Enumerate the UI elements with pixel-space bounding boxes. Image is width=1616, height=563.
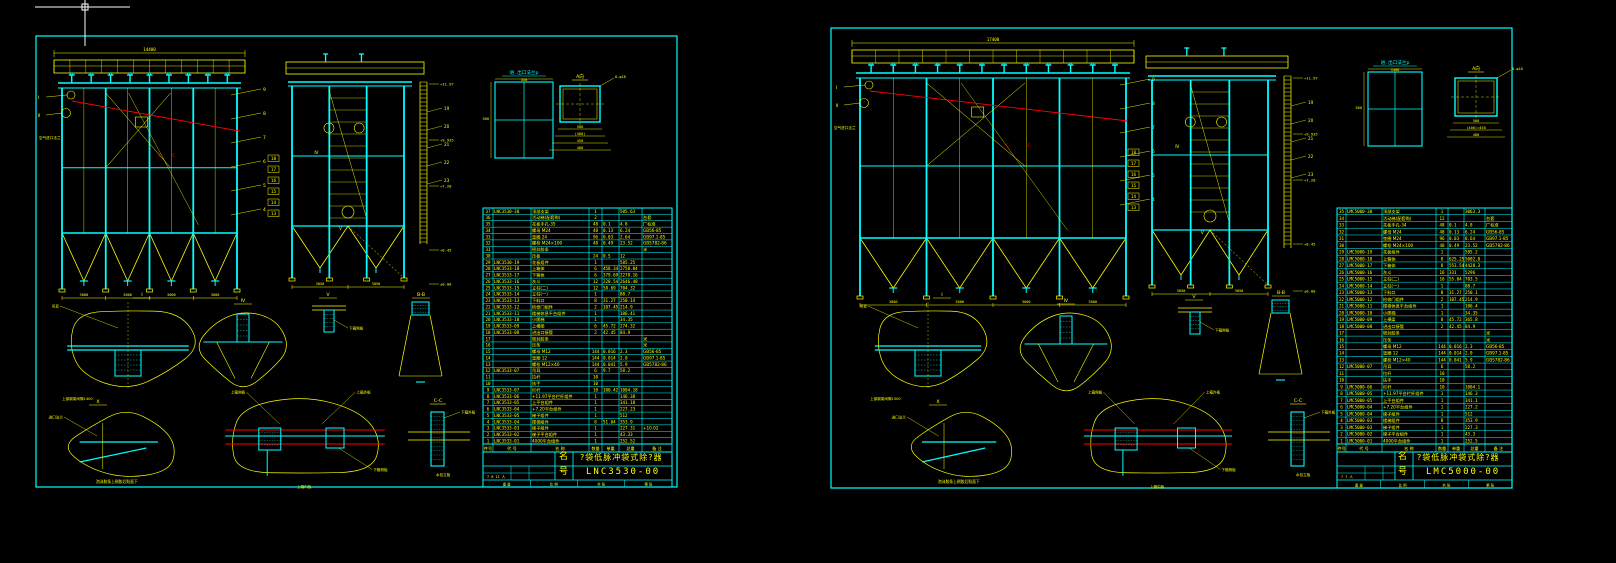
- svg-text:450: 450: [577, 139, 584, 143]
- svg-text:C: C: [1028, 143, 1031, 148]
- svg-text:立柱(一): 立柱(一): [1383, 282, 1399, 289]
- svg-text:5296: 5296: [1465, 270, 1476, 275]
- svg-text:6.24: 6.24: [1465, 229, 1476, 234]
- svg-text:31.27: 31.27: [1449, 290, 1462, 295]
- svg-text:353.9: 353.9: [1465, 418, 1478, 423]
- svg-text:480: 480: [577, 146, 584, 150]
- svg-text:Ⅱ: Ⅱ: [38, 113, 40, 119]
- svg-text:3: 3: [1340, 425, 1343, 430]
- svg-text:LNC3533-04: LNC3533-04: [494, 419, 520, 424]
- svg-text:4428.3: 4428.3: [1465, 263, 1481, 268]
- svg-text:26: 26: [485, 279, 491, 284]
- svg-text:螺母 M24: 螺母 M24: [532, 227, 551, 234]
- svg-text:16: 16: [271, 178, 277, 183]
- svg-text:16: 16: [1439, 270, 1445, 275]
- svg-text:6: 6: [594, 324, 597, 329]
- svg-text:0.03: 0.03: [603, 234, 614, 239]
- svg-text:Ⅴ: Ⅴ: [1192, 294, 1196, 300]
- svg-text:LNC3533-02: LNC3533-02: [494, 432, 520, 437]
- svg-text:32: 32: [485, 241, 491, 246]
- svg-text:+7.20平台组件: +7.20平台组件: [532, 406, 562, 413]
- svg-text:+7.20: +7.20: [1304, 178, 1316, 183]
- svg-text:214.9: 214.9: [620, 304, 633, 309]
- svg-text:水包立板: 水包立板: [1296, 472, 1311, 477]
- svg-text:21: 21: [1339, 304, 1345, 309]
- svg-text:单重: 单重: [1452, 445, 1460, 452]
- svg-text:2: 2: [1340, 432, 1343, 437]
- svg-text:GB97.1-85: GB97.1-85: [1486, 236, 1509, 241]
- svg-text:米: 米: [643, 335, 648, 342]
- svg-text:14: 14: [271, 200, 277, 205]
- svg-text:1: 1: [594, 311, 597, 316]
- svg-text:LNC3533-10: LNC3533-10: [494, 317, 520, 322]
- svg-text:吊耳: 吊耳: [52, 304, 60, 309]
- svg-text:检修门组件: 检修门组件: [532, 303, 553, 310]
- svg-text:6: 6: [594, 273, 597, 278]
- svg-text:压板: 压板: [532, 252, 541, 259]
- svg-text:梯子组件: 梯子组件: [1383, 424, 1400, 431]
- svg-text:8: 8: [1441, 317, 1444, 322]
- svg-text:比 例: 比 例: [1399, 483, 1408, 488]
- svg-text:1: 1: [1441, 432, 1444, 437]
- svg-text:1: 1: [1441, 438, 1444, 443]
- side-elevation-view: ⅣⅤ+11.97+9.935+7.20+0.45±0.0019202122231…: [268, 54, 454, 289]
- svg-text:螺母 M12: 螺母 M12: [532, 348, 551, 355]
- svg-text:LMC5000-09: LMC5000-09: [1347, 317, 1373, 322]
- svg-text:4000平台组件: 4000平台组件: [1383, 437, 1410, 444]
- svg-text:顶部支架: 顶部支架: [1383, 208, 1400, 215]
- svg-text:11: 11: [485, 375, 491, 380]
- svg-text:空气进口法兰: 空气进口法兰: [39, 135, 61, 140]
- svg-text:B-B: B-B: [1277, 290, 1285, 296]
- svg-text:LMC5000-15: LMC5000-15: [1347, 277, 1373, 282]
- svg-text:4: 4: [487, 419, 490, 424]
- svg-text:进出口接管: 进出口接管: [1383, 323, 1404, 330]
- svg-text:12: 12: [593, 285, 599, 290]
- svg-text:LMC5000-17: LMC5000-17: [1347, 263, 1373, 268]
- svg-text:0.1: 0.1: [1449, 223, 1457, 228]
- svg-text:51.04: 51.04: [603, 419, 616, 424]
- svg-text:总重: 总重: [626, 445, 634, 451]
- svg-text:20: 20: [1308, 118, 1314, 123]
- svg-text:146.38: 146.38: [620, 394, 636, 399]
- svg-text:(400)=450: (400)=450: [1466, 126, 1485, 130]
- svg-text:LNC3533-17: LNC3533-17: [494, 273, 520, 278]
- svg-text:密封胶条: 密封胶条: [532, 246, 550, 253]
- svg-text:144: 144: [1438, 357, 1446, 362]
- svg-text:8.64: 8.64: [1465, 236, 1476, 241]
- title-name-label: 名: [1398, 453, 1407, 462]
- svg-text:名 称: 名 称: [555, 445, 565, 452]
- svg-text:18: 18: [1131, 150, 1137, 155]
- svg-text:Ⅹ: Ⅹ: [936, 399, 940, 405]
- svg-text:2.3: 2.3: [1465, 344, 1473, 349]
- svg-text:6: 6: [1340, 405, 1343, 410]
- svg-text:353.9: 353.9: [620, 419, 633, 424]
- svg-text:625.25: 625.25: [1449, 256, 1465, 261]
- svg-text:下箱外板: 下箱外板: [461, 410, 476, 415]
- svg-text:垫圈 24: 垫圈 24: [532, 233, 547, 240]
- svg-text:5: 5: [487, 413, 490, 418]
- svg-text:13: 13: [1339, 357, 1345, 362]
- svg-text:24: 24: [485, 292, 491, 297]
- svg-text:LMC5000-07: LMC5000-07: [1347, 364, 1373, 369]
- svg-text:GB56-85: GB56-85: [643, 349, 662, 354]
- title-name-value: ?袋低脉冲袋式除?器: [580, 454, 663, 462]
- svg-text:26: 26: [1339, 270, 1345, 275]
- svg-text:3000: 3000: [889, 300, 898, 304]
- svg-text:379.69: 379.69: [603, 273, 619, 278]
- svg-text:+11.97平台栏杆组件: +11.97平台栏杆组件: [532, 393, 573, 400]
- svg-text:15: 15: [1339, 344, 1345, 349]
- svg-text:7: 7: [1340, 398, 1343, 403]
- svg-text:进口法兰: 进口法兰: [49, 415, 64, 420]
- svg-text:19: 19: [1308, 100, 1314, 105]
- svg-text:365.8: 365.8: [1465, 317, 1478, 322]
- svg-text:1: 1: [594, 209, 597, 214]
- svg-text:0.014: 0.014: [603, 355, 616, 360]
- svg-text:扶手: 扶手: [1383, 377, 1391, 384]
- svg-text:LMC5000-14: LMC5000-14: [1347, 283, 1373, 288]
- svg-text:2: 2: [594, 215, 597, 220]
- svg-text:22: 22: [1308, 154, 1314, 159]
- svg-text:6: 6: [263, 159, 266, 165]
- svg-text:Ⅴ: Ⅴ: [326, 292, 330, 298]
- svg-text:35: 35: [485, 222, 491, 227]
- svg-text:1: 1: [1441, 310, 1444, 315]
- svg-text:+11.97: +11.97: [1304, 76, 1318, 81]
- svg-text:单重: 单重: [606, 445, 614, 452]
- svg-text:17: 17: [1131, 161, 1137, 166]
- svg-text:共 张: 共 张: [597, 482, 606, 487]
- svg-text:上箱外板: 上箱外板: [1206, 390, 1221, 395]
- svg-text:GB5782-86: GB5782-86: [643, 362, 667, 367]
- svg-text:Ⅴ: Ⅴ: [1201, 230, 1204, 236]
- svg-text:Ⅰ: Ⅰ: [38, 95, 39, 101]
- svg-text:垫圈 12: 垫圈 12: [1383, 350, 1398, 357]
- svg-text:6.24: 6.24: [620, 228, 631, 233]
- svg-text:33: 33: [485, 234, 491, 239]
- svg-text:LNC3533-11: LNC3533-11: [494, 311, 520, 316]
- svg-text:GB5782-86: GB5782-86: [1486, 243, 1510, 248]
- svg-text:C-C: C-C: [434, 398, 443, 404]
- svg-text:3480: 3480: [1391, 68, 1400, 72]
- svg-text:0.13: 0.13: [603, 228, 614, 233]
- svg-text:13: 13: [1131, 205, 1137, 210]
- svg-text:LMC5000-13: LMC5000-13: [1347, 290, 1373, 295]
- svg-text:20: 20: [485, 317, 491, 322]
- cad-drawing-svg: 14400ⅠⅡ空气进口法兰CC3000300030003000987654ⅣⅤ+…: [0, 0, 1616, 563]
- svg-text:3000: 3000: [955, 300, 964, 304]
- svg-text:21: 21: [1308, 136, 1314, 141]
- title-name-value: ?袋低脉冲袋式除?器: [1417, 454, 1500, 462]
- svg-text:梯子组件: 梯子组件: [532, 412, 549, 419]
- svg-text:LMC5000-10: LMC5000-10: [1347, 310, 1373, 315]
- svg-text:17: 17: [1339, 331, 1345, 336]
- svg-text:144: 144: [592, 362, 600, 367]
- svg-text:1: 1: [1441, 398, 1444, 403]
- svg-text:下箱侧板: 下箱侧板: [1221, 467, 1236, 472]
- svg-text:下箱体: 下箱体: [1383, 262, 1396, 269]
- svg-text:5: 5: [263, 183, 266, 189]
- svg-text:3: 3: [487, 426, 490, 431]
- svg-text:压条: 压条: [1383, 336, 1392, 343]
- svg-text:96: 96: [1439, 236, 1445, 241]
- svg-text:11: 11: [1339, 371, 1345, 376]
- svg-text:15: 15: [271, 189, 277, 194]
- svg-text:5.9: 5.9: [1465, 357, 1473, 362]
- svg-text:43.33: 43.33: [620, 432, 633, 437]
- svg-text:活动梯(配套购): 活动梯(配套购): [1383, 215, 1412, 222]
- svg-text:进, 出口法兰p: 进, 出口法兰p: [510, 69, 539, 76]
- svg-text:上箱内板: 上箱内板: [297, 484, 312, 489]
- svg-text:重 量: 重 量: [1355, 483, 1364, 488]
- svg-text:比 例: 比 例: [550, 482, 559, 487]
- svg-text:48: 48: [1439, 243, 1445, 248]
- svg-text:84.9: 84.9: [1465, 324, 1476, 329]
- detail-views: Ⅰ吊耳上部钢架间隙1400ⅣⅤ下箱侧板B-BⅩ进口法兰上箱内板下箱侧板上箱侧板上…: [49, 292, 476, 489]
- svg-text:6: 6: [594, 266, 597, 271]
- svg-text:Ⅰ: Ⅰ: [941, 292, 942, 298]
- svg-text:第 张: 第 张: [1486, 483, 1495, 488]
- svg-text:梯子组件: 梯子组件: [532, 425, 549, 432]
- svg-text:8: 8: [1441, 290, 1444, 295]
- svg-text:22: 22: [444, 160, 450, 165]
- svg-text:拉杆: 拉杆: [532, 374, 541, 381]
- svg-text:227.3: 227.3: [1465, 425, 1478, 430]
- svg-text:7 7 人: 7 7 人: [1341, 474, 1353, 479]
- svg-text:28: 28: [485, 266, 491, 271]
- svg-text:米: 米: [643, 342, 648, 349]
- svg-text:LNC3533-13: LNC3533-13: [494, 298, 520, 303]
- svg-text:88.7: 88.7: [1465, 283, 1476, 288]
- svg-text:34: 34: [485, 228, 491, 233]
- svg-text:500: 500: [577, 125, 584, 129]
- svg-text:Ⅳ: Ⅳ: [1064, 298, 1069, 304]
- svg-text:10: 10: [593, 375, 599, 380]
- svg-text:1: 1: [1441, 425, 1444, 430]
- svg-text:1: 1: [594, 413, 597, 418]
- svg-text:代 号: 代 号: [1359, 445, 1369, 452]
- svg-text:14: 14: [1339, 351, 1345, 356]
- svg-text:LMC5000-05: LMC5000-05: [1347, 391, 1373, 396]
- svg-text:垫圈 M24: 垫圈 M24: [1383, 235, 1402, 242]
- bom-table: 35LMC5000-30顶部支架13063.334活动梯(配套购)12台套33花…: [1337, 208, 1512, 452]
- svg-text:27: 27: [485, 273, 491, 278]
- cad-canvas[interactable]: 14400ⅠⅡ空气进口法兰CC3000300030003000987654ⅣⅤ+…: [0, 0, 1616, 563]
- svg-text:146.3: 146.3: [1465, 391, 1478, 396]
- svg-text:小爬梯: 小爬梯: [1383, 309, 1396, 316]
- title-name-label: 名: [559, 453, 568, 462]
- svg-text:3000: 3000: [1088, 300, 1097, 304]
- svg-text:拉杆: 拉杆: [1383, 370, 1392, 377]
- svg-text:楼梯休息平台组件: 楼梯休息平台组件: [1383, 303, 1417, 310]
- svg-text:楼梯组件: 楼梯组件: [532, 418, 549, 425]
- svg-text:16: 16: [1131, 172, 1137, 177]
- svg-text:备 注: 备 注: [1494, 445, 1505, 452]
- svg-text:35: 35: [1339, 209, 1345, 214]
- svg-text:花板组件: 花板组件: [1383, 249, 1400, 256]
- svg-text:10: 10: [485, 381, 491, 386]
- svg-text:+10.02: +10.02: [643, 426, 659, 431]
- svg-text:8: 8: [594, 298, 597, 303]
- svg-text:2.3: 2.3: [620, 349, 628, 354]
- svg-text:106.41: 106.41: [620, 311, 636, 316]
- svg-text:上横梁: 上横梁: [1383, 316, 1396, 323]
- svg-text:274.32: 274.32: [620, 324, 636, 329]
- svg-text:上箱侧板: 上箱侧板: [1088, 390, 1103, 395]
- svg-text:花板组件: 花板组件: [532, 259, 549, 266]
- svg-text:0.014: 0.014: [1449, 351, 1462, 356]
- svg-text:LMC5000-08: LMC5000-08: [1347, 324, 1373, 329]
- svg-text:检修门组件: 检修门组件: [1383, 296, 1404, 303]
- svg-text:48: 48: [593, 228, 599, 233]
- svg-text:24: 24: [1339, 283, 1345, 288]
- svg-text:3000: 3000: [123, 293, 132, 297]
- svg-text:螺母 M24: 螺母 M24: [1383, 228, 1402, 235]
- svg-text:13: 13: [485, 362, 491, 367]
- svg-text:12: 12: [1439, 216, 1445, 221]
- svg-text:立柱(一): 立柱(一): [532, 291, 548, 298]
- svg-text:458.34: 458.34: [603, 266, 619, 271]
- svg-text:0.041: 0.041: [603, 362, 616, 367]
- svg-text:252.5: 252.5: [1465, 438, 1478, 443]
- svg-text:480: 480: [1473, 133, 1480, 137]
- svg-text:Ⅰ: Ⅰ: [141, 292, 142, 298]
- svg-text:备 注: 备 注: [652, 445, 663, 452]
- svg-text:LNC3533-08: LNC3533-08: [494, 330, 520, 335]
- svg-text:扶手: 扶手: [532, 380, 540, 387]
- svg-text:58.2: 58.2: [620, 368, 631, 373]
- svg-text:10: 10: [1439, 371, 1445, 376]
- svg-text:密封胶条: 密封胶条: [532, 335, 550, 342]
- svg-text:上箱内板: 上箱内板: [1150, 484, 1165, 489]
- svg-text:灰斗: 灰斗: [1383, 269, 1391, 276]
- svg-text:LMC5000-04: LMC5000-04: [1347, 411, 1373, 416]
- svg-text:20: 20: [1339, 310, 1345, 315]
- svg-text:+0.45: +0.45: [1304, 242, 1315, 247]
- svg-text:250.14: 250.14: [620, 298, 636, 303]
- drawing-number-label: 号: [559, 468, 568, 477]
- svg-text:24: 24: [593, 253, 599, 258]
- svg-text:7: 7: [487, 400, 490, 405]
- svg-text:Ⅰ: Ⅰ: [836, 85, 837, 91]
- svg-text:花板手孔-35: 花板手孔-35: [532, 221, 556, 228]
- svg-text:30: 30: [1339, 243, 1345, 248]
- svg-text:LNC3533-18: LNC3533-18: [494, 266, 520, 271]
- svg-text:12: 12: [620, 253, 626, 258]
- svg-text:33: 33: [1339, 223, 1345, 228]
- svg-text:250.1: 250.1: [1465, 290, 1478, 295]
- svg-text:1: 1: [594, 438, 597, 443]
- svg-text:2646.48: 2646.48: [620, 279, 638, 284]
- svg-text:3050: 3050: [372, 282, 381, 286]
- svg-text:100.42: 100.42: [603, 387, 619, 392]
- svg-text:共 张: 共 张: [1442, 483, 1451, 488]
- svg-text:14: 14: [485, 355, 491, 360]
- svg-text:Ⅴ: Ⅴ: [339, 226, 342, 232]
- svg-text:331: 331: [1449, 270, 1457, 275]
- svg-text:1: 1: [594, 317, 597, 322]
- svg-text:8: 8: [1441, 418, 1444, 423]
- svg-text:500: 500: [1356, 106, 1363, 110]
- svg-text:GB97.1-85: GB97.1-85: [1486, 351, 1509, 356]
- svg-text:垫圈 12: 垫圈 12: [532, 354, 547, 361]
- svg-text:LMC5000-11: LMC5000-11: [1347, 304, 1373, 309]
- svg-text:27: 27: [1339, 263, 1345, 268]
- svg-text:43.3: 43.3: [1465, 432, 1476, 437]
- svg-text:14400: 14400: [143, 47, 156, 52]
- svg-text:2: 2: [1441, 297, 1444, 302]
- svg-text:LMC5000-19: LMC5000-19: [1347, 250, 1373, 255]
- svg-text:23: 23: [1339, 290, 1345, 295]
- svg-text:1: 1: [1441, 283, 1444, 288]
- svg-text:3063.3: 3063.3: [1465, 209, 1481, 214]
- svg-text:505.63: 505.63: [620, 209, 636, 214]
- svg-text:227.2: 227.2: [1465, 405, 1478, 410]
- svg-text:GB5782-86: GB5782-86: [1486, 357, 1510, 362]
- svg-text:压条: 压条: [532, 342, 541, 349]
- svg-text:LNC3533-05: LNC3533-05: [494, 413, 520, 418]
- svg-text:7 8 11 人: 7 8 11 人: [487, 474, 506, 479]
- svg-text:LNC3533-01: LNC3533-01: [494, 438, 520, 443]
- svg-text:341.1: 341.1: [1465, 398, 1478, 403]
- svg-text:553.54: 553.54: [1449, 263, 1465, 268]
- svg-text:144: 144: [1438, 344, 1446, 349]
- svg-text:23: 23: [1308, 172, 1314, 177]
- svg-text:585.25: 585.25: [620, 260, 636, 265]
- svg-text:18: 18: [1339, 324, 1345, 329]
- svg-text:144: 144: [592, 349, 600, 354]
- svg-text:+0.45: +0.45: [440, 248, 451, 253]
- svg-text:下箱外板: 下箱外板: [1321, 410, 1336, 415]
- svg-text:107.45: 107.45: [1449, 297, 1465, 302]
- svg-text:上部钢架间隙1500: 上部钢架间隙1500: [870, 396, 901, 401]
- svg-text:500: 500: [483, 117, 490, 121]
- main-elevation-view: 17400ⅠⅡ空气进口法兰CC3000300030003000987654: [834, 37, 1155, 307]
- svg-text:1: 1: [594, 292, 597, 297]
- svg-text:1: 1: [1441, 391, 1444, 396]
- svg-text:空气进口法兰: 空气进口法兰: [834, 125, 856, 130]
- svg-text:16: 16: [485, 343, 491, 348]
- svg-text:1: 1: [594, 426, 597, 431]
- svg-text:第 张: 第 张: [644, 482, 653, 487]
- svg-text:GB97.1-85: GB97.1-85: [643, 355, 666, 360]
- svg-text:19: 19: [1339, 317, 1345, 322]
- svg-text:31: 31: [1339, 236, 1345, 241]
- svg-text:1: 1: [594, 260, 597, 265]
- svg-text:8: 8: [594, 419, 597, 424]
- svg-text:B-φ18: B-φ18: [1512, 67, 1523, 71]
- svg-text:15: 15: [1131, 183, 1137, 188]
- svg-text:栏杆: 栏杆: [1383, 383, 1392, 390]
- svg-text:22: 22: [1339, 297, 1345, 302]
- svg-text:42.45: 42.45: [1449, 324, 1462, 329]
- svg-text:9: 9: [263, 87, 266, 93]
- svg-text:10: 10: [1339, 378, 1345, 383]
- svg-text:45.72: 45.72: [1449, 317, 1462, 322]
- svg-text:220.54: 220.54: [603, 279, 619, 284]
- svg-text:31: 31: [485, 247, 491, 252]
- svg-text:C: C: [158, 153, 161, 158]
- svg-text:21: 21: [485, 311, 491, 316]
- svg-text:585.2: 585.2: [1465, 250, 1478, 255]
- svg-text:0.03: 0.03: [1449, 236, 1460, 241]
- svg-text:5002.0: 5002.0: [1465, 256, 1481, 261]
- svg-text:C-C: C-C: [1294, 398, 1303, 404]
- svg-text:+11.97: +11.97: [440, 82, 454, 87]
- svg-text:Ⅹ: Ⅹ: [96, 399, 100, 405]
